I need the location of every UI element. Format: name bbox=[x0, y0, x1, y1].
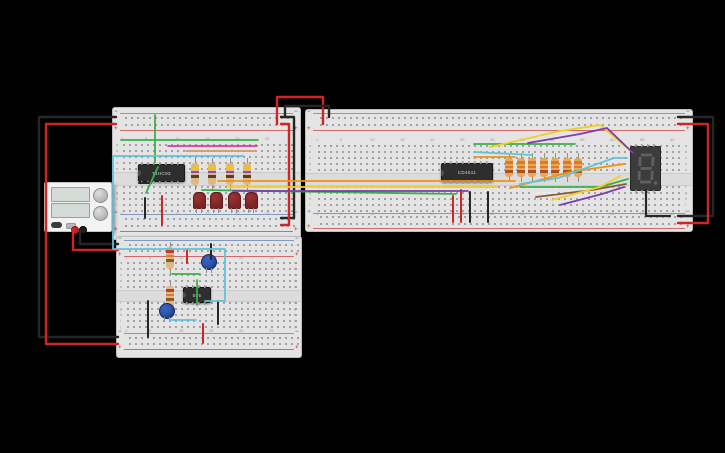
rail-stripe-plus bbox=[313, 130, 685, 131]
row-letter: d bbox=[294, 279, 296, 283]
ic-label: 74HC93 bbox=[139, 165, 184, 181]
rail-polarity-mark: − bbox=[118, 330, 122, 335]
decimal-point bbox=[654, 181, 657, 184]
row-letter: c bbox=[116, 155, 118, 159]
row-letter: i bbox=[294, 319, 295, 323]
column-label: 10 bbox=[175, 212, 179, 216]
column-label: 1 bbox=[316, 212, 318, 216]
row-letter: c bbox=[293, 155, 295, 159]
resistor-band bbox=[166, 255, 174, 258]
resistor-body bbox=[574, 158, 582, 177]
psu-voltage-knob[interactable] bbox=[93, 188, 108, 203]
row-letter: b bbox=[116, 149, 118, 153]
resistor-band bbox=[551, 166, 559, 169]
terminal-strip-holes bbox=[316, 184, 682, 214]
row-letter: a bbox=[309, 144, 311, 148]
column-label: 15 bbox=[400, 212, 404, 216]
power-supply[interactable] bbox=[44, 182, 112, 232]
rail-stripe-minus bbox=[124, 333, 294, 334]
row-letter: h bbox=[309, 197, 311, 201]
resistor-band bbox=[505, 166, 513, 169]
row-letter: g bbox=[309, 191, 311, 195]
led[interactable] bbox=[210, 192, 223, 209]
rail-polarity-mark: + bbox=[114, 127, 118, 132]
rail-polarity-mark: + bbox=[118, 253, 122, 258]
resistor-body bbox=[505, 158, 513, 177]
resistor[interactable] bbox=[505, 158, 513, 177]
terminal-strip-holes bbox=[316, 143, 682, 173]
resistor-band bbox=[166, 250, 174, 253]
resistor-band bbox=[574, 166, 582, 169]
row-letter: d bbox=[116, 161, 118, 165]
resistor[interactable] bbox=[191, 163, 199, 185]
row-letter: h bbox=[293, 197, 295, 201]
column-label: 25 bbox=[265, 137, 269, 141]
resistor-band bbox=[563, 170, 571, 173]
column-label: 40 bbox=[550, 212, 554, 216]
led[interactable] bbox=[245, 192, 258, 209]
psu-current-knob[interactable] bbox=[93, 206, 108, 221]
column-label: 60 bbox=[670, 138, 674, 142]
resistor-band bbox=[540, 166, 548, 169]
row-letter: d bbox=[293, 161, 295, 165]
row-letter: i bbox=[120, 319, 121, 323]
column-label: 25 bbox=[265, 212, 269, 216]
column-label: 55 bbox=[640, 138, 644, 142]
column-label: 55 bbox=[640, 212, 644, 216]
psu-negative-terminal[interactable] bbox=[79, 226, 87, 234]
resistor-band bbox=[166, 259, 174, 262]
column-label: 30 bbox=[490, 212, 494, 216]
row-letter: f bbox=[685, 185, 686, 189]
row-letter: h bbox=[294, 313, 296, 317]
column-label: 5 bbox=[149, 256, 151, 260]
column-label: 1 bbox=[316, 138, 318, 142]
led-lead bbox=[201, 208, 202, 213]
resistor[interactable] bbox=[517, 158, 525, 177]
row-letter: j bbox=[685, 209, 686, 213]
rail-stripe-plus bbox=[313, 228, 685, 229]
column-label: 45 bbox=[580, 212, 584, 216]
row-letter: j bbox=[293, 209, 294, 213]
row-letter: a bbox=[294, 261, 296, 265]
resistor-band bbox=[208, 175, 216, 178]
resistor-band bbox=[226, 175, 234, 178]
resistor-band bbox=[191, 175, 199, 178]
seven-segment-digit bbox=[631, 147, 660, 190]
capacitor-lead bbox=[169, 317, 170, 322]
row-letter: e bbox=[120, 285, 122, 289]
column-label: 35 bbox=[520, 138, 524, 142]
resistor-band bbox=[551, 161, 559, 164]
power-rail-holes bbox=[127, 248, 299, 254]
resistor[interactable] bbox=[540, 158, 548, 177]
rail-polarity-mark: + bbox=[114, 228, 118, 233]
row-letter: e bbox=[309, 168, 311, 172]
resistor[interactable] bbox=[528, 158, 536, 177]
column-label: 5 bbox=[145, 137, 147, 141]
column-label: 10 bbox=[179, 256, 183, 260]
row-letter: f bbox=[120, 301, 121, 305]
row-letter: c bbox=[685, 156, 687, 160]
row-letter: b bbox=[294, 267, 296, 271]
rail-stripe-minus bbox=[124, 240, 294, 241]
column-label: 25 bbox=[269, 256, 273, 260]
row-letter: i bbox=[309, 203, 310, 207]
circuit-canvas[interactable]: −−++−−++11551010151520202525aabbccddeeff… bbox=[0, 0, 725, 453]
row-letter: h bbox=[685, 197, 687, 201]
resistor-band bbox=[208, 171, 216, 174]
row-letter: a bbox=[293, 143, 295, 147]
row-letter: f bbox=[309, 185, 310, 189]
row-letter: j bbox=[116, 209, 117, 213]
ic-pins-bottom bbox=[141, 181, 182, 184]
power-rail-holes bbox=[127, 341, 299, 347]
power-rail-holes bbox=[123, 122, 295, 128]
power-rail-holes bbox=[123, 216, 295, 222]
column-label: 50 bbox=[610, 212, 614, 216]
row-letter: f bbox=[116, 185, 117, 189]
terminal-strip-holes bbox=[125, 300, 299, 330]
column-label: 50 bbox=[610, 138, 614, 142]
rail-polarity-mark: + bbox=[118, 346, 122, 351]
resistor-body bbox=[540, 158, 548, 177]
ic-chip[interactable]: 555 bbox=[183, 287, 211, 303]
power-rail-holes bbox=[318, 122, 682, 128]
column-label: 15 bbox=[209, 329, 213, 333]
rail-polarity-mark: + bbox=[307, 127, 311, 132]
resistor-band bbox=[528, 166, 536, 169]
resistor-band bbox=[528, 170, 536, 173]
resistor-band bbox=[551, 170, 559, 173]
row-letter: j bbox=[120, 325, 121, 329]
power-rail-holes bbox=[123, 223, 295, 229]
psu-voltage-display bbox=[51, 187, 90, 202]
resistor-band bbox=[505, 170, 513, 173]
led-lead bbox=[253, 208, 254, 213]
resistor-band bbox=[226, 166, 234, 169]
rail-polarity-mark: − bbox=[114, 110, 118, 115]
column-label: 5 bbox=[149, 329, 151, 333]
display-pins-top bbox=[635, 144, 656, 147]
resistor-band bbox=[166, 289, 174, 292]
row-letter: i bbox=[685, 203, 686, 207]
resistor-band bbox=[243, 166, 251, 169]
row-letter: e bbox=[294, 285, 296, 289]
rail-stripe-plus bbox=[124, 349, 294, 350]
row-letter: a bbox=[120, 261, 122, 265]
resistor-band bbox=[563, 166, 571, 169]
led[interactable] bbox=[228, 192, 241, 209]
terminal-strip-holes bbox=[121, 184, 295, 214]
resistor-band bbox=[243, 171, 251, 174]
psu-positive-terminal[interactable] bbox=[71, 226, 79, 234]
led-lead bbox=[248, 208, 249, 213]
left-loop-positive-wire[interactable] bbox=[46, 124, 118, 344]
column-label: 1 bbox=[125, 256, 127, 260]
resistor-band bbox=[191, 171, 199, 174]
resistor-band bbox=[517, 166, 525, 169]
row-letter: b bbox=[685, 150, 687, 154]
resistor-body bbox=[166, 247, 174, 269]
column-label: 25 bbox=[460, 138, 464, 142]
column-label: 15 bbox=[205, 137, 209, 141]
led-lead bbox=[231, 208, 232, 213]
seven-segment-display[interactable] bbox=[630, 146, 661, 191]
resistor-band bbox=[243, 175, 251, 178]
row-letter: h bbox=[116, 197, 118, 201]
resistor-band bbox=[574, 161, 582, 164]
rail-stripe-minus bbox=[313, 113, 685, 114]
column-label: 25 bbox=[460, 212, 464, 216]
row-letter: i bbox=[293, 203, 294, 207]
resistor-body bbox=[243, 163, 251, 185]
column-label: 1 bbox=[125, 329, 127, 333]
row-letter: b bbox=[309, 150, 311, 154]
column-label: 5 bbox=[340, 138, 342, 142]
row-letter: a bbox=[685, 144, 687, 148]
column-label: 20 bbox=[430, 212, 434, 216]
rail-polarity-mark: + bbox=[307, 225, 311, 230]
column-label: 10 bbox=[370, 212, 374, 216]
resistor-body bbox=[563, 158, 571, 177]
ic-chip[interactable]: CD4511 bbox=[441, 163, 493, 182]
row-letter: g bbox=[293, 191, 295, 195]
row-letter: f bbox=[294, 301, 295, 305]
column-label: 20 bbox=[235, 137, 239, 141]
rail-polarity-mark: − bbox=[307, 110, 311, 115]
led-lead bbox=[236, 208, 237, 213]
display-pins-bottom bbox=[635, 190, 656, 193]
column-label: 15 bbox=[205, 212, 209, 216]
column-label: 1 bbox=[121, 212, 123, 216]
resistor-body bbox=[528, 158, 536, 177]
resistor-band bbox=[166, 294, 174, 297]
led-lead bbox=[213, 208, 214, 213]
column-label: 60 bbox=[670, 212, 674, 216]
column-label: 20 bbox=[430, 138, 434, 142]
capacitor[interactable] bbox=[159, 303, 175, 319]
capacitor-lead bbox=[211, 268, 212, 273]
row-letter: i bbox=[116, 203, 117, 207]
resistor-body bbox=[226, 163, 234, 185]
column-label: 10 bbox=[175, 137, 179, 141]
resistor-band bbox=[191, 166, 199, 169]
resistor-body bbox=[191, 163, 199, 185]
resistor[interactable] bbox=[243, 163, 251, 185]
power-rail-holes bbox=[318, 221, 682, 227]
rail-stripe-plus bbox=[120, 231, 293, 232]
column-label: 25 bbox=[269, 329, 273, 333]
row-letter: a bbox=[116, 143, 118, 147]
power-rail-holes bbox=[318, 115, 682, 121]
column-label: 15 bbox=[400, 138, 404, 142]
row-letter: g bbox=[685, 191, 687, 195]
rail-stripe-plus bbox=[120, 130, 293, 131]
row-letter: c bbox=[309, 156, 311, 160]
capacitor[interactable] bbox=[201, 254, 217, 270]
row-letter: e bbox=[116, 167, 118, 171]
row-letter: d bbox=[309, 162, 311, 166]
power-rail-holes bbox=[123, 115, 295, 121]
row-letter: e bbox=[685, 168, 687, 172]
resistor-band bbox=[528, 161, 536, 164]
row-letter: d bbox=[120, 279, 122, 283]
resistor-body bbox=[551, 158, 559, 177]
column-label: 1 bbox=[121, 137, 123, 141]
resistor[interactable] bbox=[226, 163, 234, 185]
row-letter: g bbox=[116, 191, 118, 195]
psu-current-display bbox=[51, 203, 90, 218]
row-letter: b bbox=[120, 267, 122, 271]
column-label: 35 bbox=[520, 212, 524, 216]
rail-polarity-mark: + bbox=[686, 225, 690, 230]
row-letter: g bbox=[120, 307, 122, 311]
rail-polarity-mark: − bbox=[686, 210, 690, 215]
rail-stripe-minus bbox=[120, 113, 293, 114]
resistor[interactable] bbox=[563, 158, 571, 177]
resistor-band bbox=[517, 161, 525, 164]
resistor-body bbox=[208, 163, 216, 185]
row-letter: c bbox=[120, 273, 122, 277]
resistor-band bbox=[517, 170, 525, 173]
row-letter: j bbox=[309, 209, 310, 213]
column-label: 10 bbox=[179, 329, 183, 333]
row-letter: d bbox=[685, 162, 687, 166]
ic-pins-bottom bbox=[186, 302, 208, 305]
ic-pins-bottom bbox=[444, 181, 490, 184]
ic-label: 555 bbox=[184, 288, 210, 302]
ic-chip[interactable]: 74HC93 bbox=[138, 164, 185, 182]
rail-polarity-mark: − bbox=[118, 237, 122, 242]
resistor-band bbox=[563, 161, 571, 164]
column-label: 30 bbox=[490, 138, 494, 142]
rail-polarity-mark: − bbox=[686, 110, 690, 115]
resistor[interactable] bbox=[208, 163, 216, 185]
resistor-band bbox=[574, 170, 582, 173]
column-label: 40 bbox=[550, 138, 554, 142]
column-label: 20 bbox=[239, 256, 243, 260]
resistor-band bbox=[505, 161, 513, 164]
resistor-band bbox=[540, 170, 548, 173]
row-letter: f bbox=[293, 185, 294, 189]
resistor[interactable] bbox=[574, 158, 582, 177]
resistor[interactable] bbox=[166, 247, 174, 269]
led-lead bbox=[218, 208, 219, 213]
row-letter: b bbox=[293, 149, 295, 153]
led-lead bbox=[196, 208, 197, 213]
ic-label: CD4511 bbox=[442, 164, 492, 181]
capacitor-lead bbox=[206, 268, 207, 273]
row-letter: j bbox=[294, 325, 295, 329]
column-label: 5 bbox=[145, 212, 147, 216]
resistor-band bbox=[166, 298, 174, 301]
row-letter: e bbox=[293, 167, 295, 171]
resistor-band bbox=[208, 166, 216, 169]
row-letter: h bbox=[120, 313, 122, 317]
resistor-band bbox=[540, 161, 548, 164]
column-label: 20 bbox=[239, 329, 243, 333]
column-label: 45 bbox=[580, 138, 584, 142]
row-letter: g bbox=[294, 307, 296, 311]
capacitor-lead bbox=[164, 317, 165, 322]
psu-power-button[interactable] bbox=[51, 222, 62, 228]
rail-polarity-mark: + bbox=[686, 127, 690, 132]
row-letter: c bbox=[294, 273, 296, 277]
led[interactable] bbox=[193, 192, 206, 209]
column-label: 5 bbox=[340, 212, 342, 216]
column-label: 10 bbox=[370, 138, 374, 142]
resistor-band bbox=[226, 171, 234, 174]
resistor[interactable] bbox=[551, 158, 559, 177]
resistor-body bbox=[517, 158, 525, 177]
